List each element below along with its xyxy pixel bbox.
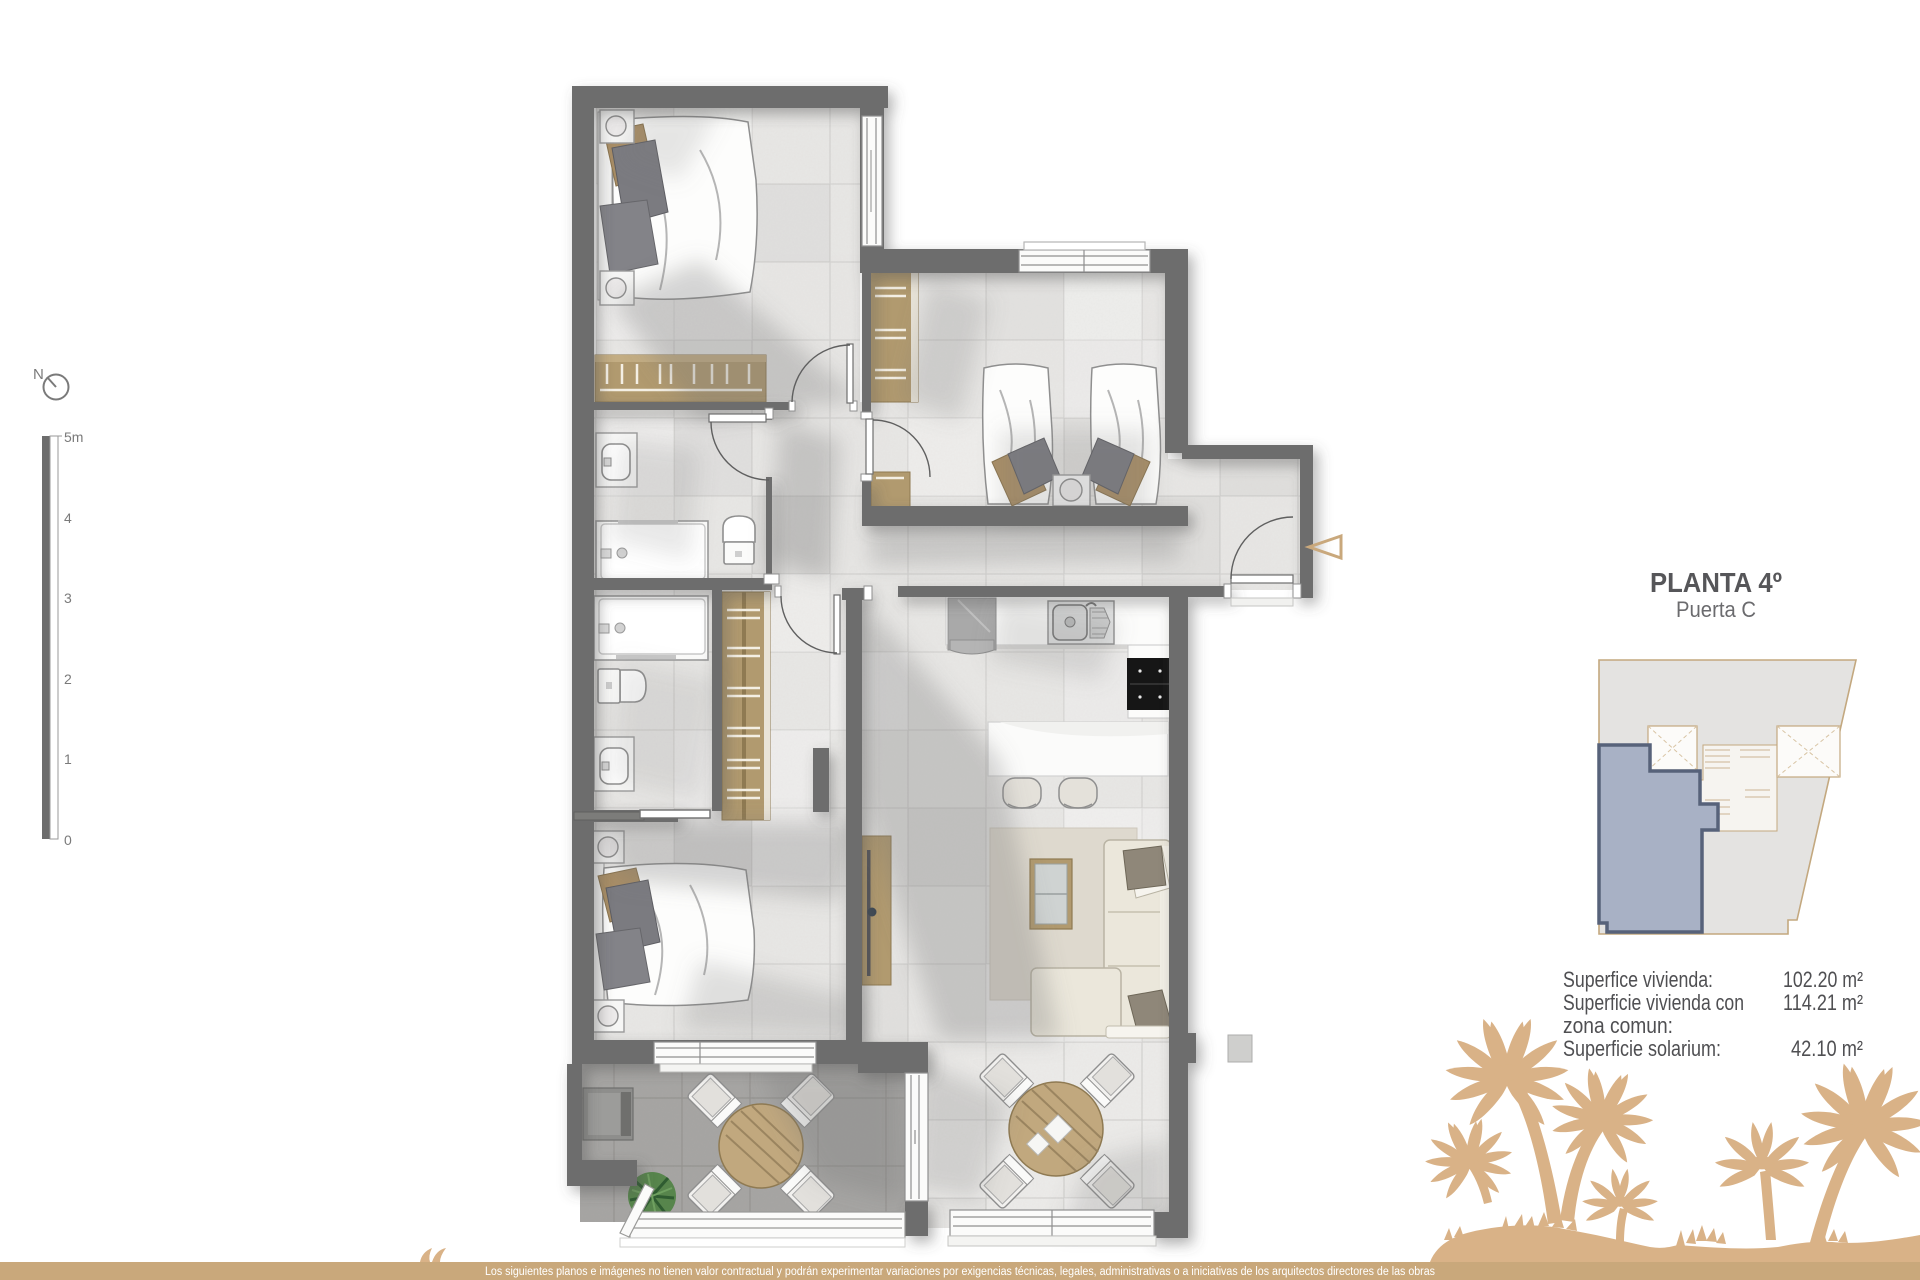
svg-text:114.21 m²: 114.21 m² bbox=[1783, 990, 1863, 1015]
svg-text:0: 0 bbox=[64, 832, 72, 848]
svg-text:2: 2 bbox=[64, 671, 72, 687]
svg-text:PLANTA 4º: PLANTA 4º bbox=[1650, 567, 1782, 598]
svg-text:Superficie solarium:: Superficie solarium: bbox=[1563, 1036, 1721, 1061]
svg-text:Superficie vivienda con: Superficie vivienda con bbox=[1563, 990, 1744, 1015]
svg-text:Puerta C: Puerta C bbox=[1676, 597, 1756, 622]
svg-text:5m: 5m bbox=[64, 429, 83, 445]
svg-text:102.20 m²: 102.20 m² bbox=[1783, 967, 1863, 992]
svg-text:4: 4 bbox=[64, 510, 72, 526]
svg-text:Los siguientes planos e imágen: Los siguientes planos e imágenes no tien… bbox=[485, 1266, 1435, 1278]
svg-text:3: 3 bbox=[64, 590, 72, 606]
svg-text:1: 1 bbox=[64, 751, 72, 767]
svg-text:42.10 m²: 42.10 m² bbox=[1791, 1036, 1863, 1061]
svg-text:zona comun:: zona comun: bbox=[1563, 1013, 1673, 1038]
svg-text:Superfice vivienda:: Superfice vivienda: bbox=[1563, 967, 1713, 992]
svg-text:N: N bbox=[33, 366, 44, 383]
